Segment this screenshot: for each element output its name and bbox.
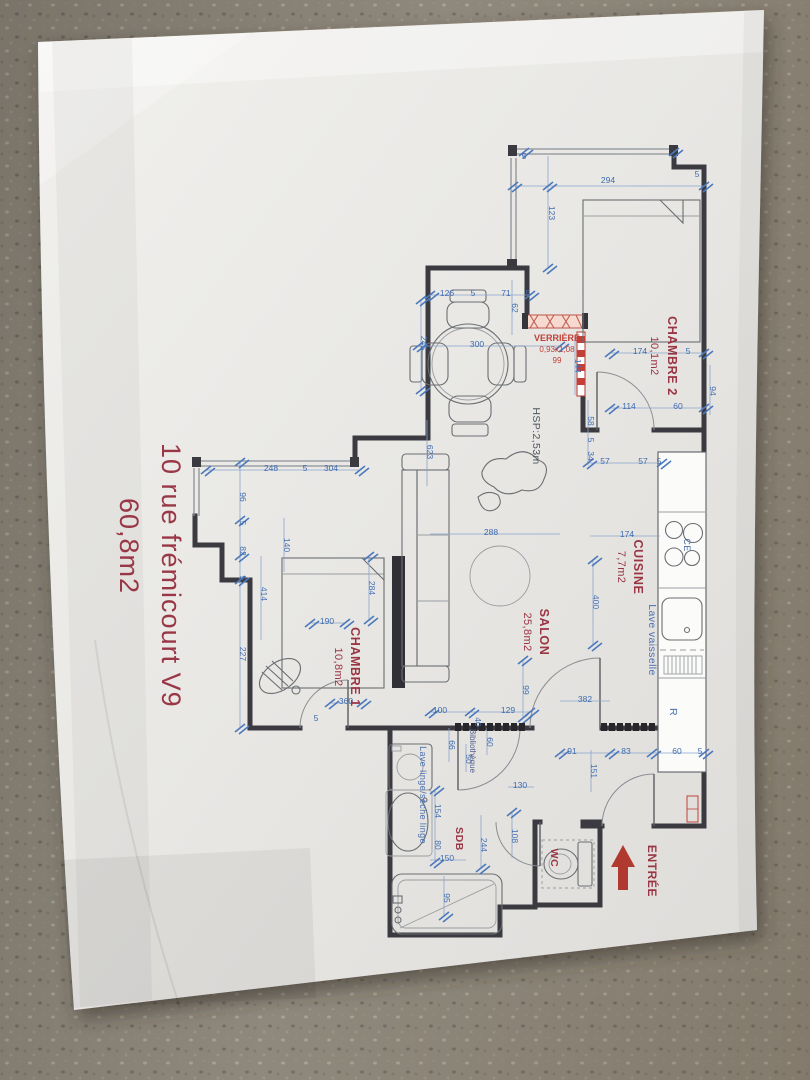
room-label-wc: WC: [548, 849, 560, 868]
dimension-value: 108: [510, 829, 520, 843]
fridge-label: R: [667, 708, 679, 716]
dimension-value: 82: [238, 546, 248, 556]
dimension-value: 114: [622, 401, 636, 411]
dimension-value: 60: [485, 737, 495, 747]
verriere-width: 99: [553, 356, 562, 365]
room-label-chambre1: CHAMBRE 1: [348, 627, 362, 707]
dimension-value: 414: [259, 587, 269, 601]
room-area-salon: 25,8m2: [521, 612, 533, 651]
plan-title-area: 60,8m2: [114, 498, 144, 594]
verriere-name: VERRIÈRE: [534, 333, 580, 343]
dimension-value: 66: [447, 740, 457, 750]
dimension-value: 60: [672, 746, 682, 756]
dimension-value: 80: [433, 840, 443, 850]
washer-dryer-label: Lave linge/sèche linge: [418, 746, 428, 844]
dimension-value: 227: [238, 647, 248, 661]
dimension-value: 174: [620, 529, 634, 539]
dimension-value: 248: [264, 463, 278, 473]
dimension-value: 5: [586, 438, 596, 443]
floorplan-photo-svg: 5294512317451146094126571562300245144585…: [0, 0, 810, 1080]
photo-of-paper-floorplan-on-carpet: { "photo": { "carpet_color": "#898377", …: [0, 0, 810, 1080]
dimension-value: 60: [673, 401, 683, 411]
plan-title-address: 10 rue frémicourt V9: [156, 443, 186, 708]
kitchen-counter: [658, 452, 706, 772]
dimension-value: 94: [708, 386, 718, 396]
dimension-value: 5: [238, 576, 248, 581]
dimension-value: 5: [471, 288, 476, 298]
room-label-salon: SALON: [537, 609, 551, 656]
dimension-value: 34: [586, 451, 596, 461]
dimension-value: 382: [578, 694, 592, 704]
dimension-value: 294: [601, 175, 615, 185]
room-area-chambre1: 10,8m2: [332, 647, 344, 686]
dimension-value: 130: [513, 780, 527, 790]
dimension-value: 174: [633, 346, 647, 356]
dimension-value: 140: [282, 538, 292, 552]
room-area-cuisine: 7,7m2: [615, 551, 627, 584]
dimension-value: 304: [324, 463, 338, 473]
dimension-value: 95: [442, 893, 452, 903]
hob-label: CE: [682, 538, 692, 551]
dimension-value: 71: [501, 288, 511, 298]
dimension-value: 623: [425, 445, 435, 459]
dimension-value: 5: [238, 521, 248, 526]
dimension-value: 288: [484, 527, 498, 537]
entree-label: ENTRÉE: [645, 845, 660, 897]
dimension-value: 245: [419, 336, 429, 350]
dimension-value: 126: [440, 288, 454, 298]
dishwasher-label: Lave vaisselle: [646, 604, 658, 676]
dimension-value: 62: [510, 303, 520, 313]
ceiling-height-label: HSP:2,53m: [530, 407, 542, 464]
dimension-value: 58: [586, 416, 596, 426]
dimension-value: 5: [657, 456, 662, 466]
dimension-value: 150: [440, 853, 454, 863]
room-label-cuisine: CUISINE: [631, 540, 645, 595]
dimension-value: 57: [638, 456, 648, 466]
dimension-value: 5: [522, 151, 527, 161]
dimension-value: 40: [473, 717, 483, 727]
dimension-value: 151: [589, 764, 599, 778]
dimension-value: 129: [501, 705, 515, 715]
dimension-value: 96: [238, 492, 248, 502]
dimension-value: 5: [314, 713, 319, 723]
room-label-sdb: SDB: [453, 827, 465, 851]
dimension-value: 244: [479, 838, 489, 852]
dimension-value: 144: [573, 359, 583, 373]
dimension-value: 190: [320, 616, 334, 626]
dimension-value: 57: [600, 456, 610, 466]
room-area-chambre2: 10,1m2: [648, 336, 660, 375]
partition-wall: [392, 556, 405, 688]
dimension-value: 5: [303, 463, 308, 473]
dimension-value: 5: [695, 169, 700, 179]
verriere-size: 0,93x1,08: [539, 345, 575, 354]
dimension-value: 123: [547, 206, 557, 220]
dimension-value: 91: [567, 746, 577, 756]
dimension-value: 284: [367, 581, 377, 595]
bookshelf-label: Bibliothèque: [468, 729, 477, 774]
dimension-value: 5: [698, 746, 703, 756]
room-label-chambre2: CHAMBRE 2: [665, 316, 679, 396]
dimension-value: 100: [433, 705, 447, 715]
dimension-value: 99: [521, 685, 531, 695]
dimension-value: 83: [621, 746, 631, 756]
dimension-value: 5: [526, 288, 531, 298]
dimension-value: 300: [470, 339, 484, 349]
dimension-value: 400: [591, 595, 601, 609]
dimension-value: 154: [433, 804, 443, 818]
dimension-value: 5: [686, 346, 691, 356]
